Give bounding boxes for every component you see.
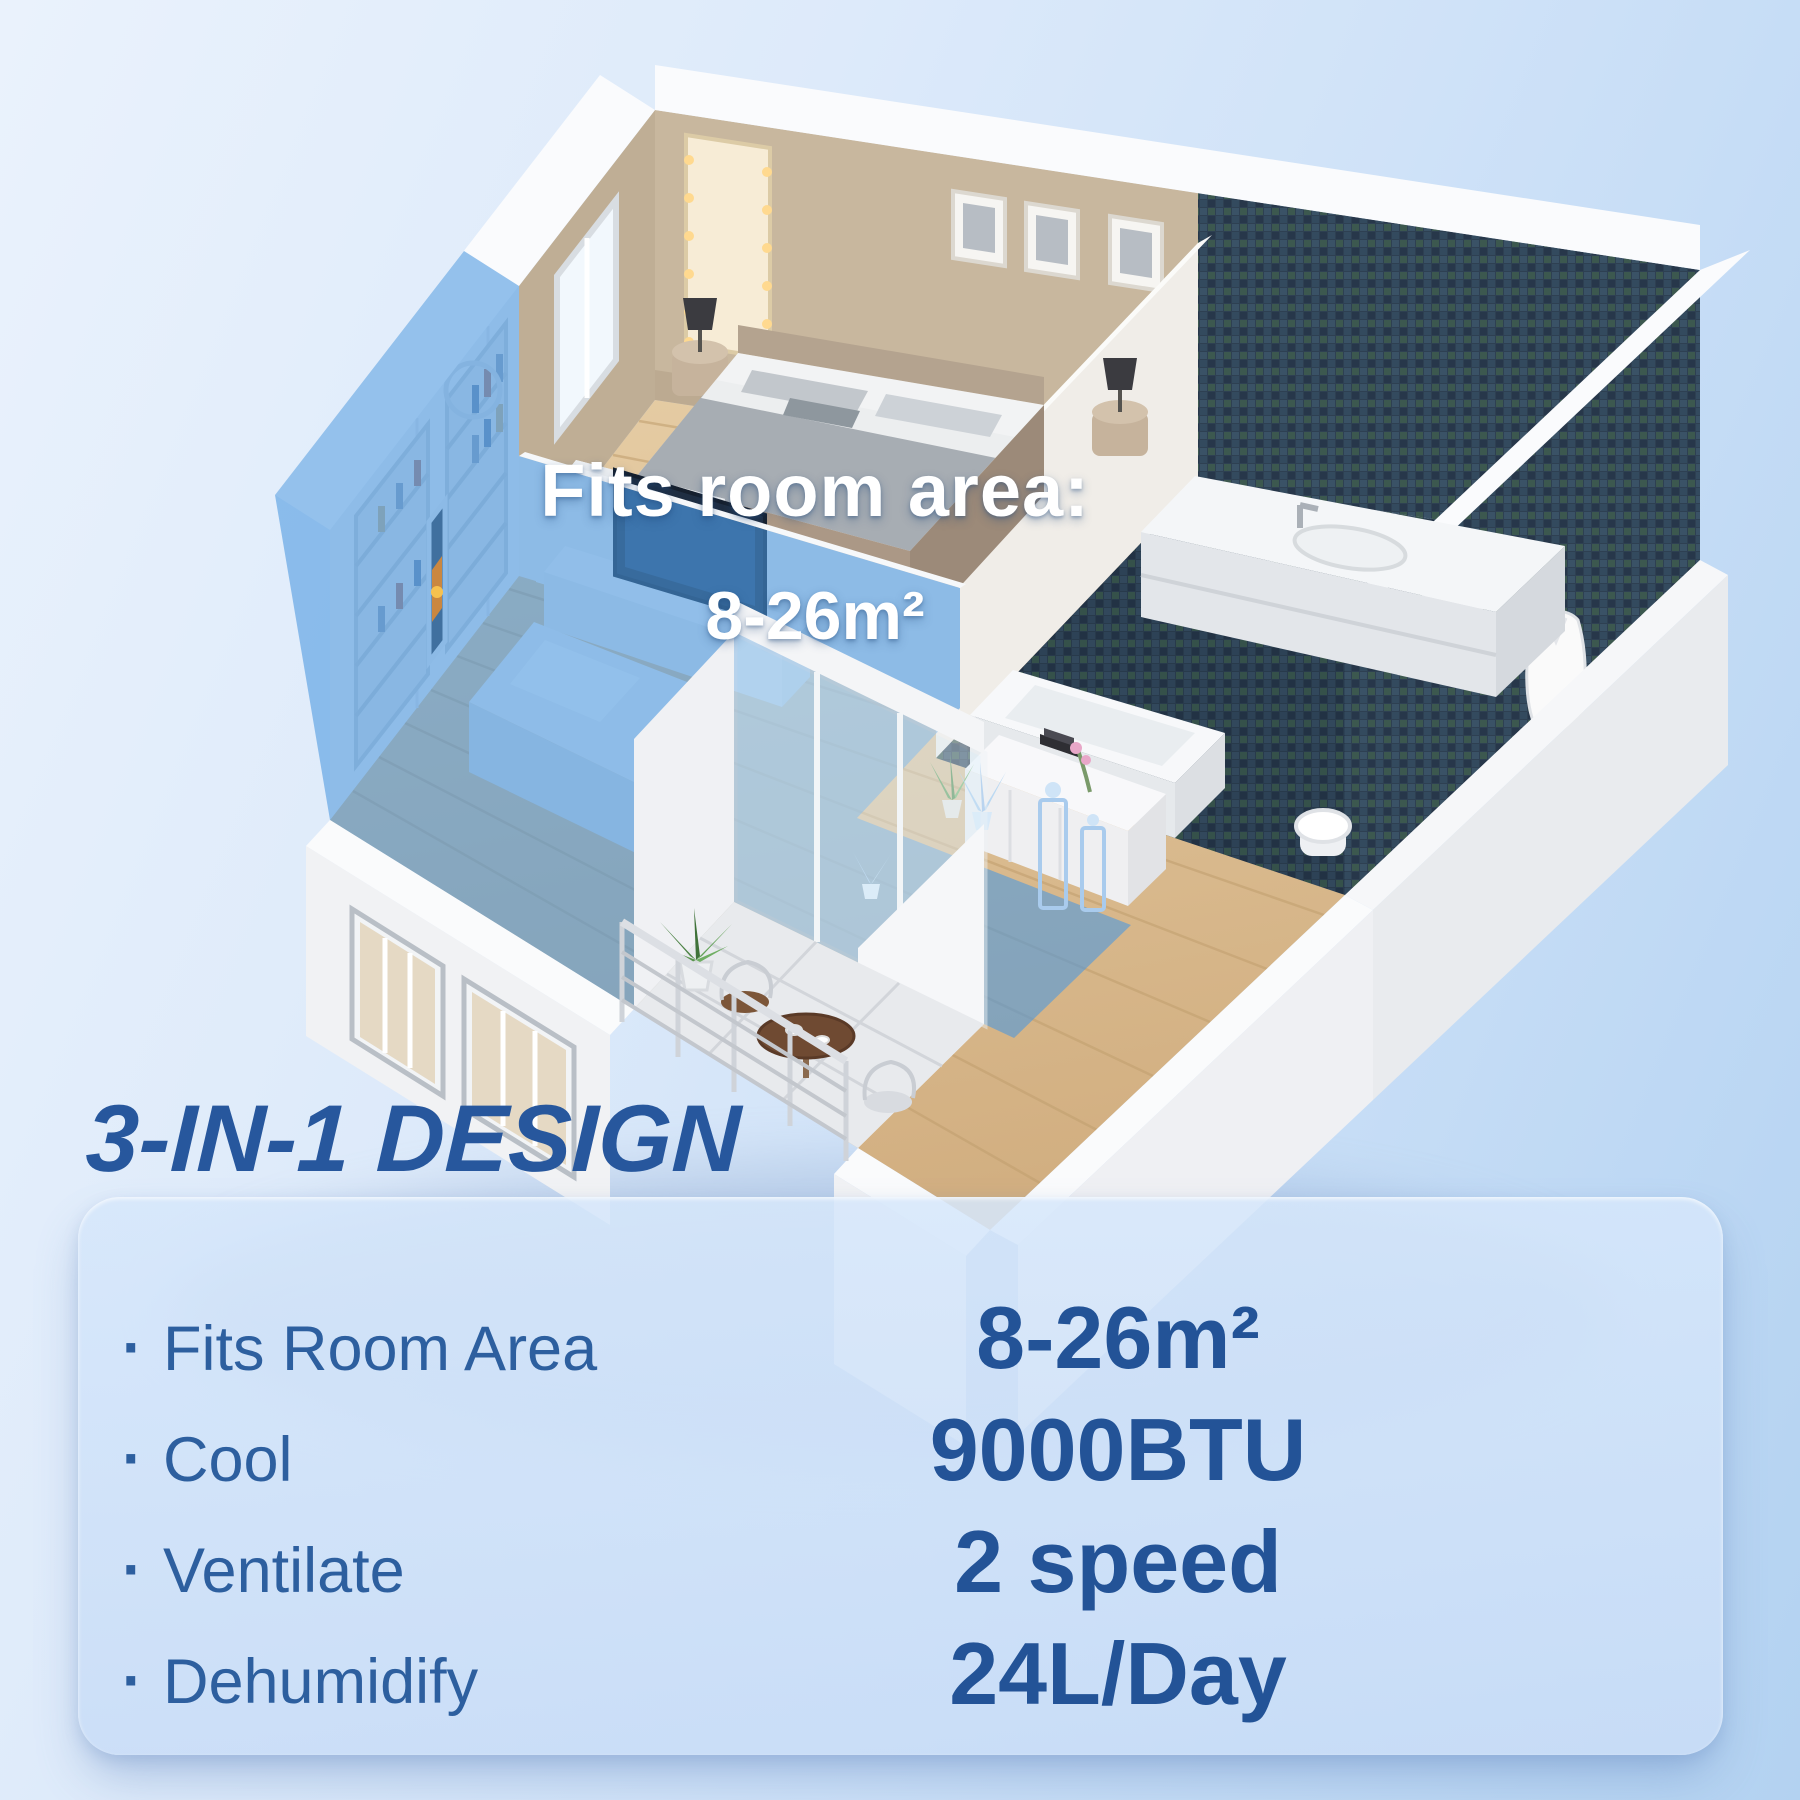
room-area-label-line1: Fits room area: xyxy=(435,448,1195,533)
spec-value-dehumidify-rate: 24L/Day xyxy=(768,1618,1468,1730)
product-infographic: Fits room area: 8-26m² 3-IN-1 DESIGN · F… xyxy=(0,0,1800,1800)
spec-value-speed: 2 speed xyxy=(768,1506,1468,1618)
spec-value-room-area: 8-26m² xyxy=(768,1282,1468,1394)
feature-label: Dehumidify xyxy=(163,1646,478,1718)
bullet-dot: · xyxy=(122,1317,143,1380)
feature-label: Cool xyxy=(163,1424,293,1496)
room-area-label-value: 8-26m² xyxy=(435,577,1195,655)
spec-value-btu: 9000BTU xyxy=(768,1394,1468,1506)
section-heading: 3-IN-1 DESIGN xyxy=(84,1085,742,1194)
spec-panel: · Fits Room Area · Cool · Ventilate · De… xyxy=(78,1197,1723,1755)
specs-list: 8-26m² 9000BTU 2 speed 24L/Day xyxy=(768,1282,1468,1730)
feature-item-dehumidify: · Dehumidify xyxy=(122,1626,597,1737)
feature-item-fits-room-area: · Fits Room Area xyxy=(122,1293,597,1404)
toilet xyxy=(1296,810,1350,856)
features-list: · Fits Room Area · Cool · Ventilate · De… xyxy=(122,1293,597,1737)
bullet-dot: · xyxy=(122,1539,143,1602)
room-area-label: Fits room area: 8-26m² xyxy=(435,448,1195,655)
bullet-dot: · xyxy=(122,1428,143,1491)
feature-label: Ventilate xyxy=(163,1535,405,1607)
feature-item-cool: · Cool xyxy=(122,1404,597,1515)
feature-label: Fits Room Area xyxy=(163,1313,597,1385)
feature-item-ventilate: · Ventilate xyxy=(122,1515,597,1626)
bullet-dot: · xyxy=(122,1650,143,1713)
